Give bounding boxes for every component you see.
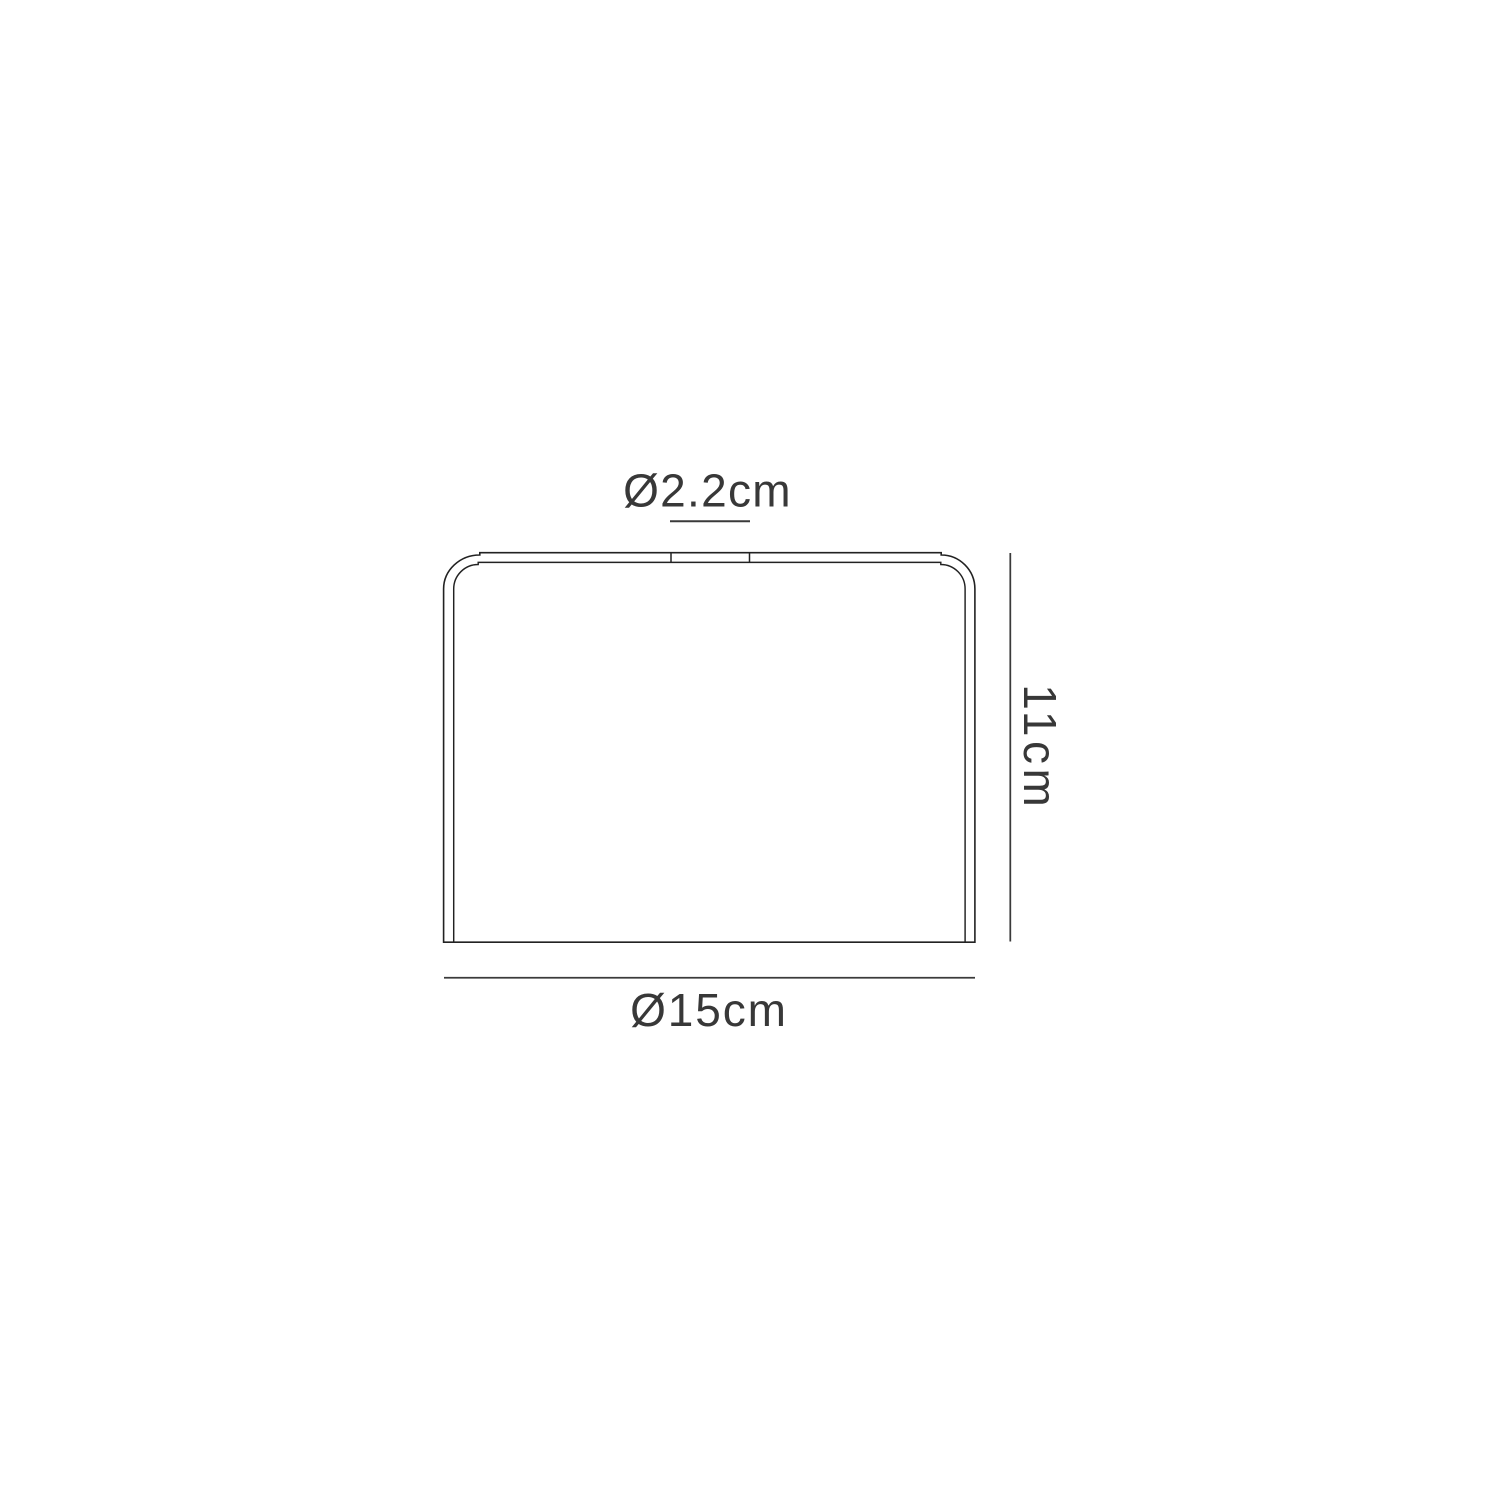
svg-text:Ø2.2cm: Ø2.2cm	[623, 465, 792, 517]
svg-text:11cm: 11cm	[1014, 684, 1066, 811]
svg-text:Ø15cm: Ø15cm	[630, 984, 788, 1036]
